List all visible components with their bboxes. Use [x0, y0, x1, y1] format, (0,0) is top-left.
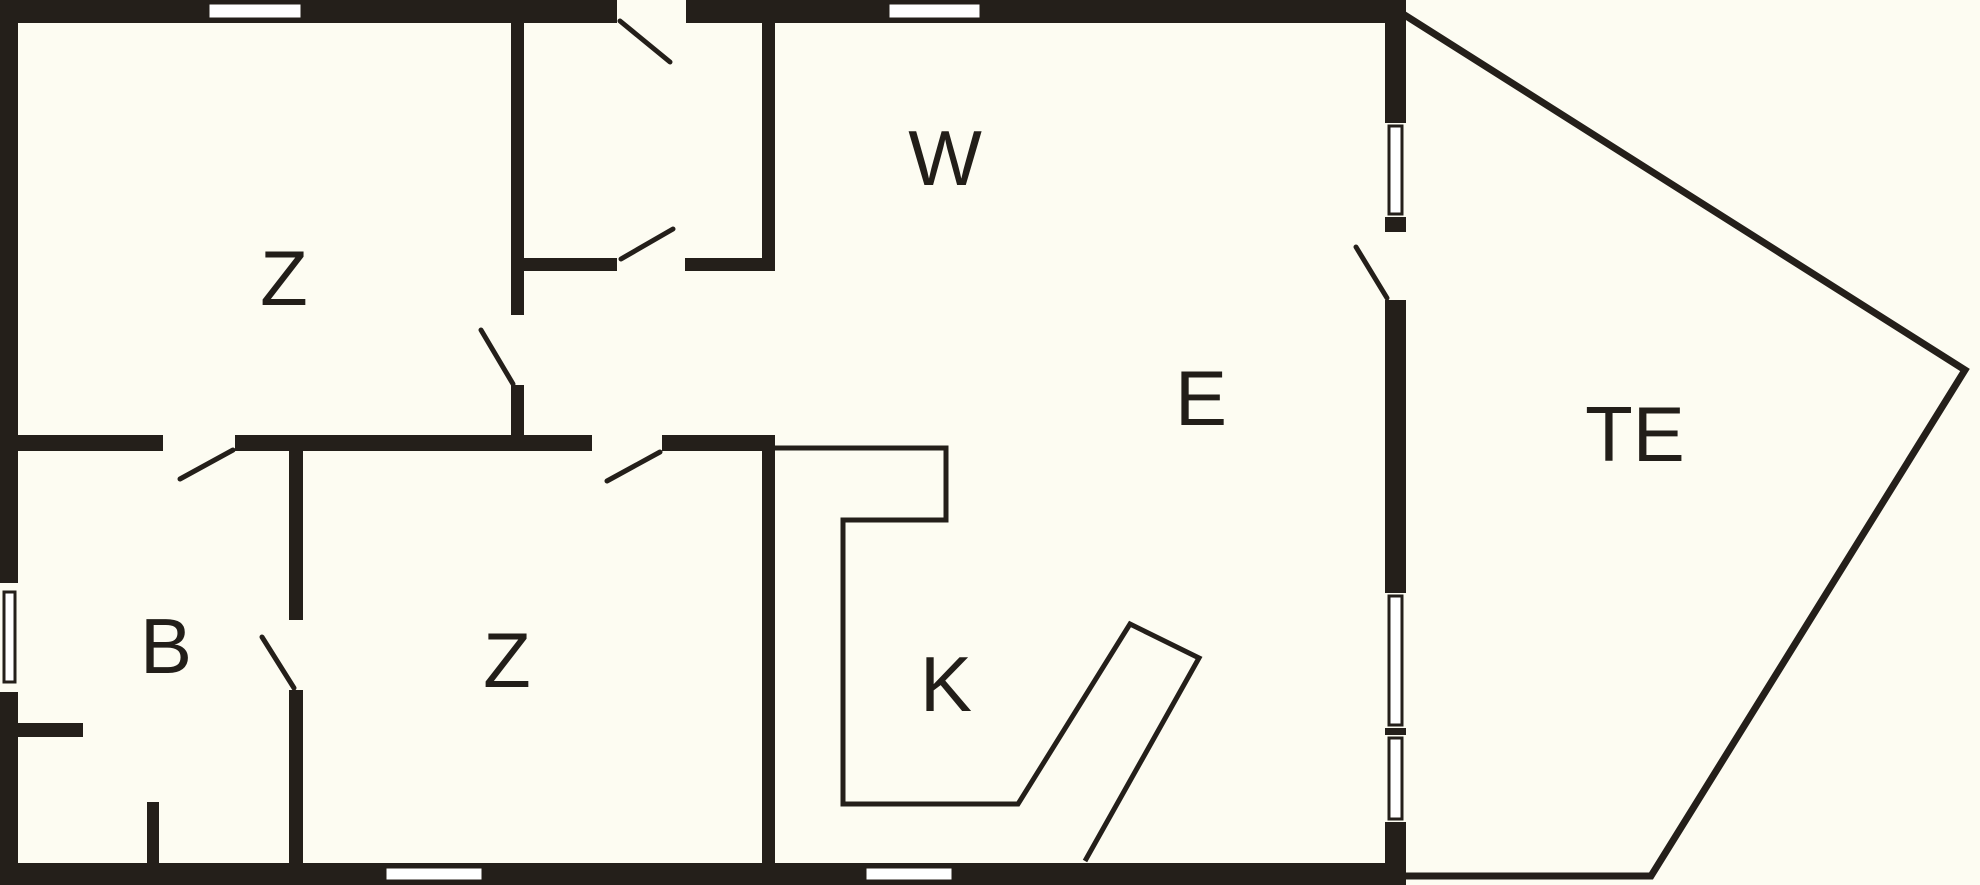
wall-bottom: [0, 863, 1405, 885]
opening-divider-z-door: [592, 435, 662, 451]
room-label-b: B: [140, 602, 192, 690]
room-label-te: TE: [1585, 390, 1685, 478]
window-right-2: [1389, 596, 1402, 725]
floor-plan-page: ZWETEBZK: [0, 0, 1980, 885]
window-top-2: [888, 3, 981, 19]
floor-plan-canvas: ZWETEBZK: [0, 0, 1980, 885]
window-bottom-1: [385, 867, 483, 881]
room-label-z-top: Z: [260, 234, 308, 322]
opening-entry-door: [617, 0, 686, 23]
room-label-w: W: [908, 114, 982, 202]
wall-b-stub-v: [147, 802, 159, 863]
wall-left: [0, 0, 18, 885]
room-label-e: E: [1175, 354, 1227, 442]
window-bottom-2: [865, 867, 953, 881]
window-left: [4, 592, 15, 682]
room-label-z-bottom: Z: [483, 616, 531, 704]
opening-divider-b-door: [163, 435, 235, 451]
wall-k-west: [762, 435, 775, 863]
opening-right-door: [1385, 232, 1406, 300]
wall-hall-east: [762, 23, 775, 271]
window-right-1: [1389, 126, 1402, 214]
opening-hall-south-door: [617, 258, 685, 271]
window-top-1: [208, 3, 302, 19]
window-right-3: [1389, 738, 1402, 819]
wall-b-stub-h: [18, 723, 83, 737]
room-label-k: K: [920, 640, 972, 728]
opening-z1-door: [511, 315, 524, 385]
